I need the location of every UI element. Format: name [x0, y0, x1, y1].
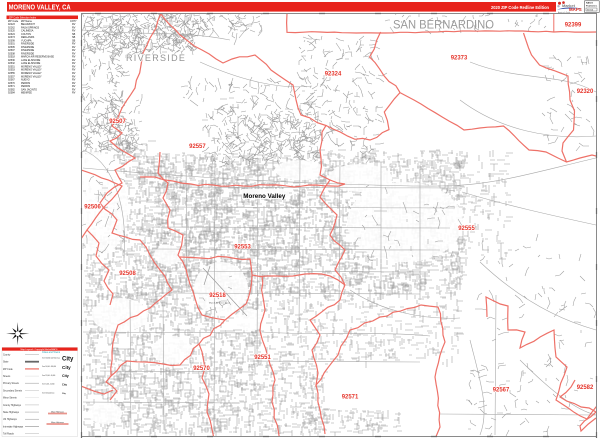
svg-text:Over 500 (and less): Over 500 (and less) [42, 392, 55, 394]
svg-text:Publishers: Publishers [586, 5, 598, 7]
svg-text:92557: 92557 [189, 143, 206, 150]
svg-text:Secondary Streets: Secondary Streets [3, 389, 23, 392]
svg-text:51913: 51913 [587, 10, 594, 12]
svg-text:92567: 92567 [493, 387, 510, 394]
svg-text:City: City [62, 357, 74, 363]
svg-text:Over 50,000 - 500,000: Over 50,000 - 500,000 [42, 366, 56, 368]
svg-text:MAPS: MAPS [569, 7, 582, 12]
svg-text:92320: 92320 [577, 88, 594, 95]
svg-text:City: City [62, 365, 71, 370]
svg-text:RV: RV [72, 92, 76, 95]
svg-text:Streets: Streets [3, 375, 11, 378]
svg-text:State: State [3, 361, 9, 364]
svg-text:92373: 92373 [451, 55, 468, 62]
svg-text:92506: 92506 [84, 204, 101, 211]
svg-text:92518: 92518 [209, 292, 226, 299]
svg-text:SAN BERNARDINO: SAN BERNARDINO [393, 18, 494, 32]
svg-text:92551: 92551 [254, 354, 271, 361]
svg-text:Toll Roads: Toll Roads [3, 434, 15, 436]
svg-text:Over 5,000 - 25,000: Over 5,000 - 25,000 [42, 384, 55, 386]
svg-text:Cities and Towns: Cities and Towns [42, 351, 61, 354]
svg-text:ZIP Code: ZIP Code [3, 369, 13, 371]
svg-text:Minor Streets: Minor Streets [3, 397, 18, 400]
svg-text:92555: 92555 [458, 225, 475, 232]
svg-text:State Highways: State Highways [3, 411, 20, 414]
svg-text:92508: 92508 [119, 270, 136, 277]
svg-text:92324: 92324 [325, 71, 342, 78]
svg-text:County Highways: County Highways [3, 404, 22, 407]
svg-text:Interstate Highways: Interstate Highways [3, 425, 24, 428]
svg-text:County: County [3, 353, 11, 356]
svg-text:March Air Force Base: March Air Force Base [209, 301, 231, 304]
svg-text:NAICS: NAICS [586, 2, 593, 5]
svg-text:92507: 92507 [109, 118, 126, 125]
svg-text:MORENO VALLEY, CA: MORENO VALLEY, CA [9, 4, 71, 11]
svg-text:92553: 92553 [234, 244, 251, 251]
svg-text:92570: 92570 [193, 365, 210, 372]
svg-text:RIVERSIDE: RIVERSIDE [126, 53, 186, 63]
svg-text:City: City [62, 374, 69, 378]
svg-text:City: City [62, 383, 67, 387]
svg-text:92571: 92571 [342, 394, 359, 401]
svg-text:2020 ZIP Code Redline Edition: 2020 ZIP Code Redline Edition [491, 5, 549, 11]
svg-text:92584: 92584 [8, 92, 15, 95]
svg-text:MENIFEE: MENIFEE [21, 92, 32, 95]
svg-text:Primary Streets: Primary Streets [3, 382, 20, 385]
svg-text:92399: 92399 [565, 22, 582, 29]
svg-text:US Highways: US Highways [3, 419, 18, 421]
svg-text:Moreno Valley: Moreno Valley [243, 193, 286, 200]
svg-text:Over 25,000 - 50,000: Over 25,000 - 50,000 [42, 375, 55, 377]
svg-text:92582: 92582 [577, 384, 594, 391]
